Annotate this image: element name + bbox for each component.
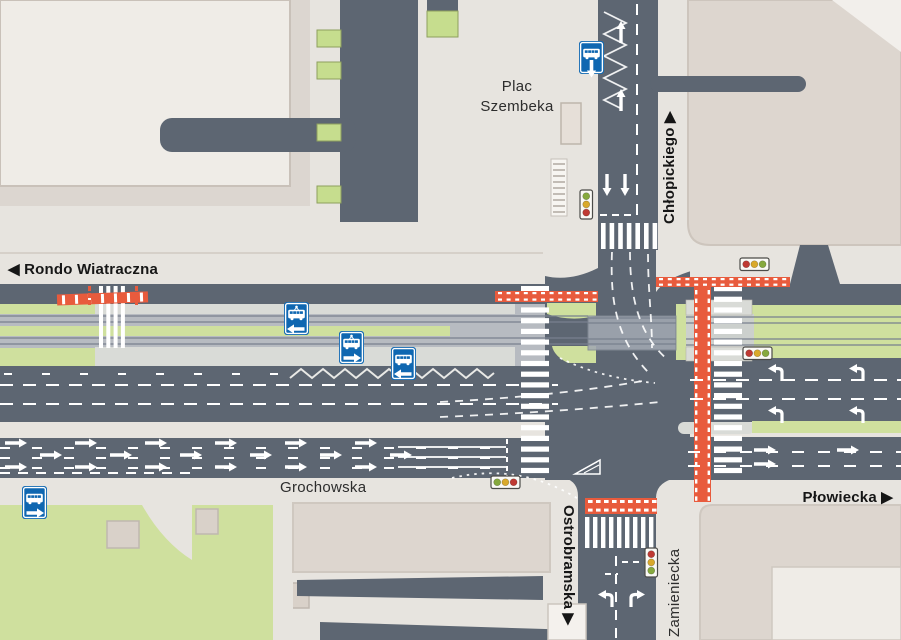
building-southeast-courtyard [772,567,901,640]
service-road-1 [297,576,543,600]
label-rondo-wiatraczna: ◀ Rondo Wiatraczna [7,261,158,278]
plaza-kiosk [561,103,581,144]
building-northeast [688,0,901,245]
bike-crossing-west [495,291,598,302]
label-grochowska: Grochowska [280,479,367,496]
tram-stop-icon [339,331,364,364]
bus-stop-icon [22,486,47,519]
median-west [0,422,523,438]
traffic-light-icon [491,476,520,489]
plaza-stairs [551,159,567,216]
green-southwest [0,505,293,640]
road-side-street-east [650,76,806,92]
crosswalk-south [585,517,653,548]
building-south [293,503,550,572]
junction-map: ◀ Rondo Wiatraczna Plac Szembeka Chłopic… [0,0,901,640]
traffic-light-icon [740,258,769,271]
label-plowiecka: Płowiecka ▶ [803,489,895,506]
bike-crossing-east-vertical [694,287,711,502]
median-east-green [752,421,901,433]
bike-crossing-dashes-west [88,286,91,305]
building-small-1 [107,521,139,548]
bus-stop-icon [579,41,604,78]
label-ostrobramska: Ostrobramska ▶ [560,505,577,626]
bus-stop-icon [391,347,416,380]
bike-crossing-dashes-west2 [135,286,138,305]
label-chlopickiego: Chłopickiego ▶ [661,110,678,224]
traffic-light-icon [743,347,772,360]
building-northwest [0,0,290,186]
planter-top [427,0,458,12]
traffic-light-icon [580,190,593,219]
tram-stop-icon [284,302,309,335]
bike-crossing-northeast [656,277,790,287]
label-plac-szembeka-2: Szembeka [480,98,554,115]
planter-top-green [427,11,458,37]
tram-crossing-box-center [588,316,676,350]
sidewalk-strip-south [273,503,293,640]
label-zamieniecka: Zamieniecka [666,548,683,637]
bike-crossing-south [585,498,657,514]
building-small-2 [196,509,218,534]
traffic-light-icon [645,548,658,577]
label-plac-szembeka-1: Plac [502,78,533,95]
